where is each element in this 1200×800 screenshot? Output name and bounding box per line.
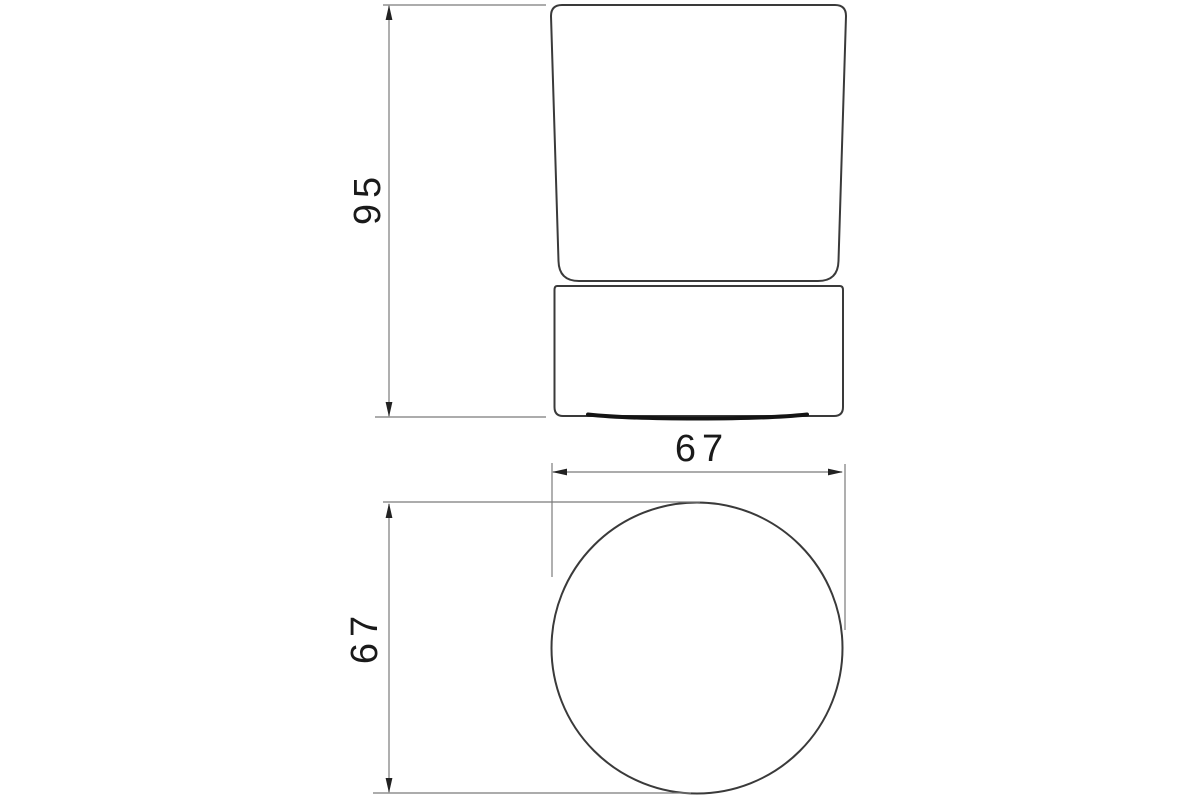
width-dimension-label: 67 — [675, 428, 729, 470]
height-arrow-down-icon — [386, 402, 393, 417]
width-arrow-left-icon — [552, 469, 567, 476]
depth-arrow-up-icon — [386, 503, 393, 518]
tumbler-outline — [551, 5, 846, 281]
width-arrow-right-icon — [828, 469, 843, 476]
plan-circle-outline — [552, 503, 843, 794]
height-dimension-label: 95 — [347, 171, 389, 225]
front-view: 95 — [347, 5, 846, 419]
depth-dimension-label: 67 — [344, 610, 386, 664]
height-arrow-up-icon — [386, 5, 393, 20]
depth-arrow-down-icon — [386, 778, 393, 793]
technical-drawing-canvas: 95 67 67 — [0, 0, 1200, 800]
drawing-page: 95 67 67 — [0, 0, 1200, 800]
plan-view: 67 67 — [344, 428, 845, 794]
base-outline — [555, 286, 844, 416]
